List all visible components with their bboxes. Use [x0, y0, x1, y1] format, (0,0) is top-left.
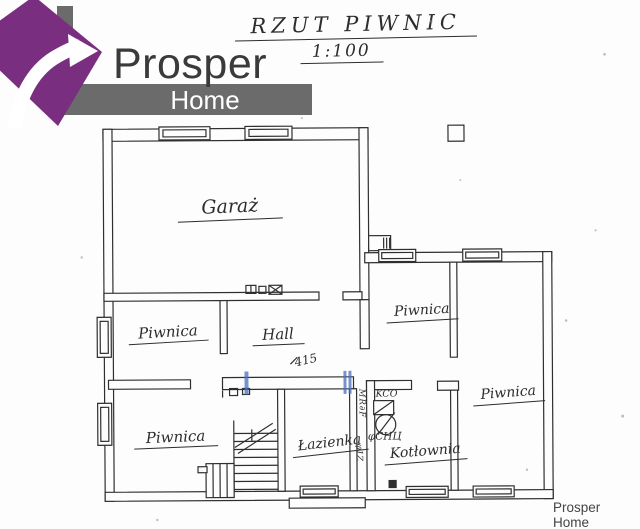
- vertical-note-1: MR∂F: [357, 389, 367, 418]
- kco-note: KCO: [376, 389, 398, 400]
- watermark-text: Prosper Home: [553, 500, 640, 529]
- window-rightblock-2-inner: [466, 252, 499, 258]
- wall-piwnica-hall-divider: [220, 301, 227, 354]
- chimney-flue-mark: [389, 481, 396, 488]
- wall-central: [222, 377, 353, 390]
- window-top-1-inner: [163, 130, 206, 137]
- wall-garage-bottom-a: [104, 292, 319, 301]
- window-rightblock-1-inner: [382, 252, 413, 258]
- window-left-2-inner: [101, 407, 109, 441]
- wall-hall-right: [360, 300, 369, 349]
- wall-lazienka-left: [278, 389, 286, 491]
- floor-plan-area: Garaż Piwnica Hall Piwnica Piwnica Łazie…: [0, 0, 640, 529]
- scanned-floor-plan-page: Prosper Home RZUT PIWNIC 1:100: [0, 0, 640, 529]
- wall-garage-bottom-b: [343, 292, 362, 300]
- pchu-note: φCHЦ: [368, 431, 402, 443]
- vertical-note-2: φ1Z: [354, 444, 364, 461]
- room-label-piwnica-bottom-left: Piwnica: [133, 427, 217, 449]
- window-top-2-inner: [249, 129, 288, 136]
- legend-square: [448, 125, 464, 141]
- wall-right-outer: [543, 252, 554, 499]
- window-lazienka-inner: [303, 489, 335, 494]
- blue-mark-1: [244, 371, 248, 394]
- room-label-garaz: Garaż: [177, 194, 283, 223]
- room-label-hall: Hall: [252, 325, 304, 346]
- stair-hook-mark: [198, 467, 207, 473]
- wall-garage-right: [359, 128, 369, 300]
- window-left-1-inner: [100, 321, 108, 353]
- wall-bottom-step: [289, 498, 365, 508]
- blue-mark-3: [348, 371, 351, 394]
- wall-duct-protrusion: [369, 236, 391, 251]
- wall-below-piwnica1: [108, 380, 190, 390]
- wall-divider-jog: [437, 381, 458, 390]
- wall-divider-lower: [450, 381, 458, 490]
- window-bottom-1-inner: [409, 489, 445, 494]
- blue-mark-2: [343, 371, 346, 394]
- window-bottom-2-inner: [476, 489, 511, 494]
- wall-top-garage: [103, 128, 368, 142]
